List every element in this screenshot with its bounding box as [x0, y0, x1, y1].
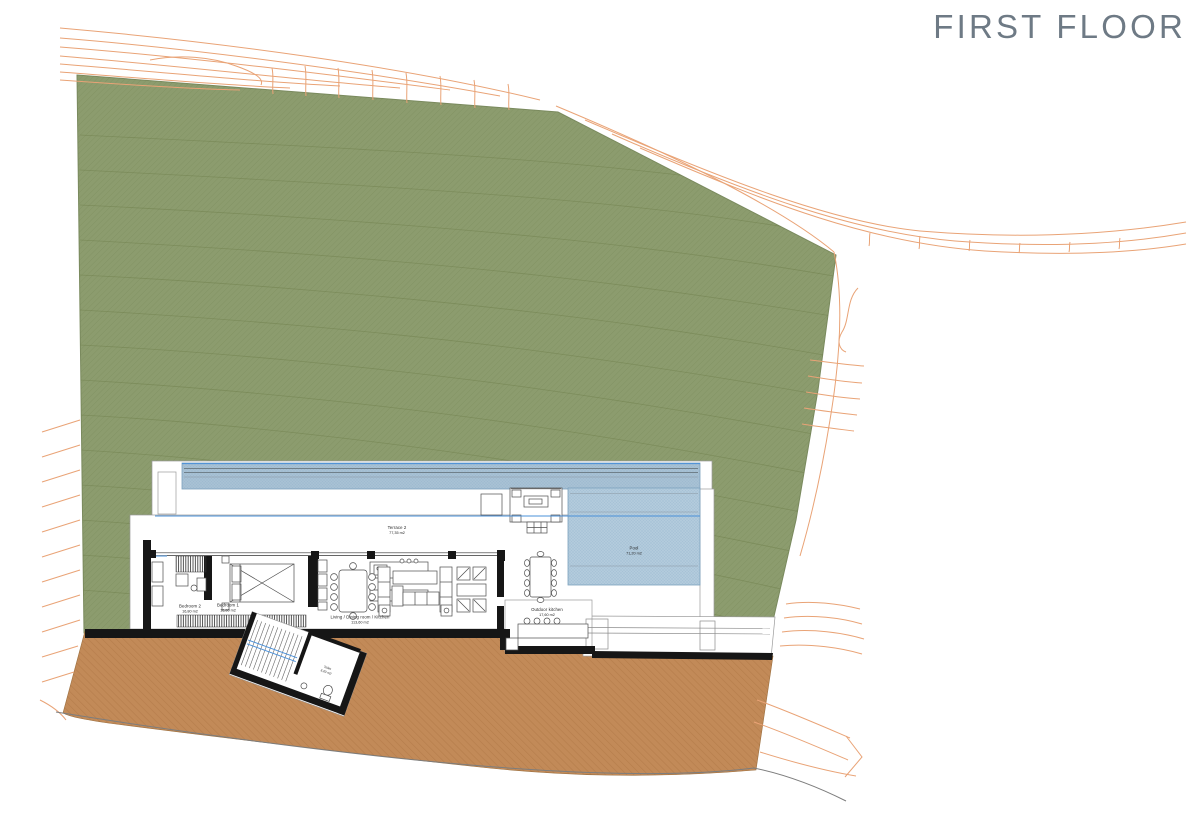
- room-label-terrace2-name: Terrace 2: [388, 525, 407, 530]
- site-plan-drawing: Toilet 3,20 m2 Terrace 2 77,35 m2 Pool 7…: [0, 0, 1200, 834]
- page-title: FIRST FLOOR: [933, 8, 1186, 45]
- room-label-bedroom1-area: 16,80 m2: [220, 609, 236, 613]
- room-label-living-name: Living / Dining room / Kitchen: [331, 615, 390, 620]
- room-label-pool-name: Pool: [629, 546, 638, 551]
- room-label-outdoor-kitchen-area: 17,60 m2: [539, 613, 555, 617]
- room-label-bedroom1-name: Bedroom 1: [217, 603, 239, 608]
- room-label-terrace2-area: 77,35 m2: [389, 531, 405, 535]
- room-label-bedroom2-area: 16,80 m2: [182, 610, 198, 614]
- room-label-bedroom2-name: Bedroom 2: [179, 604, 201, 609]
- lap-pool: [182, 463, 700, 489]
- main-pool: [568, 488, 700, 585]
- room-label-pool-area: 71,20 m2: [626, 552, 642, 556]
- room-label-living-area: 113,60 m2: [351, 621, 369, 625]
- pool-east-walk: [700, 489, 714, 617]
- floor-plan-canvas: Toilet 3,20 m2 Terrace 2 77,35 m2 Pool 7…: [0, 0, 1200, 834]
- planter: [158, 472, 176, 514]
- room-label-outdoor-kitchen-name: Outdoor kitchen: [531, 607, 563, 612]
